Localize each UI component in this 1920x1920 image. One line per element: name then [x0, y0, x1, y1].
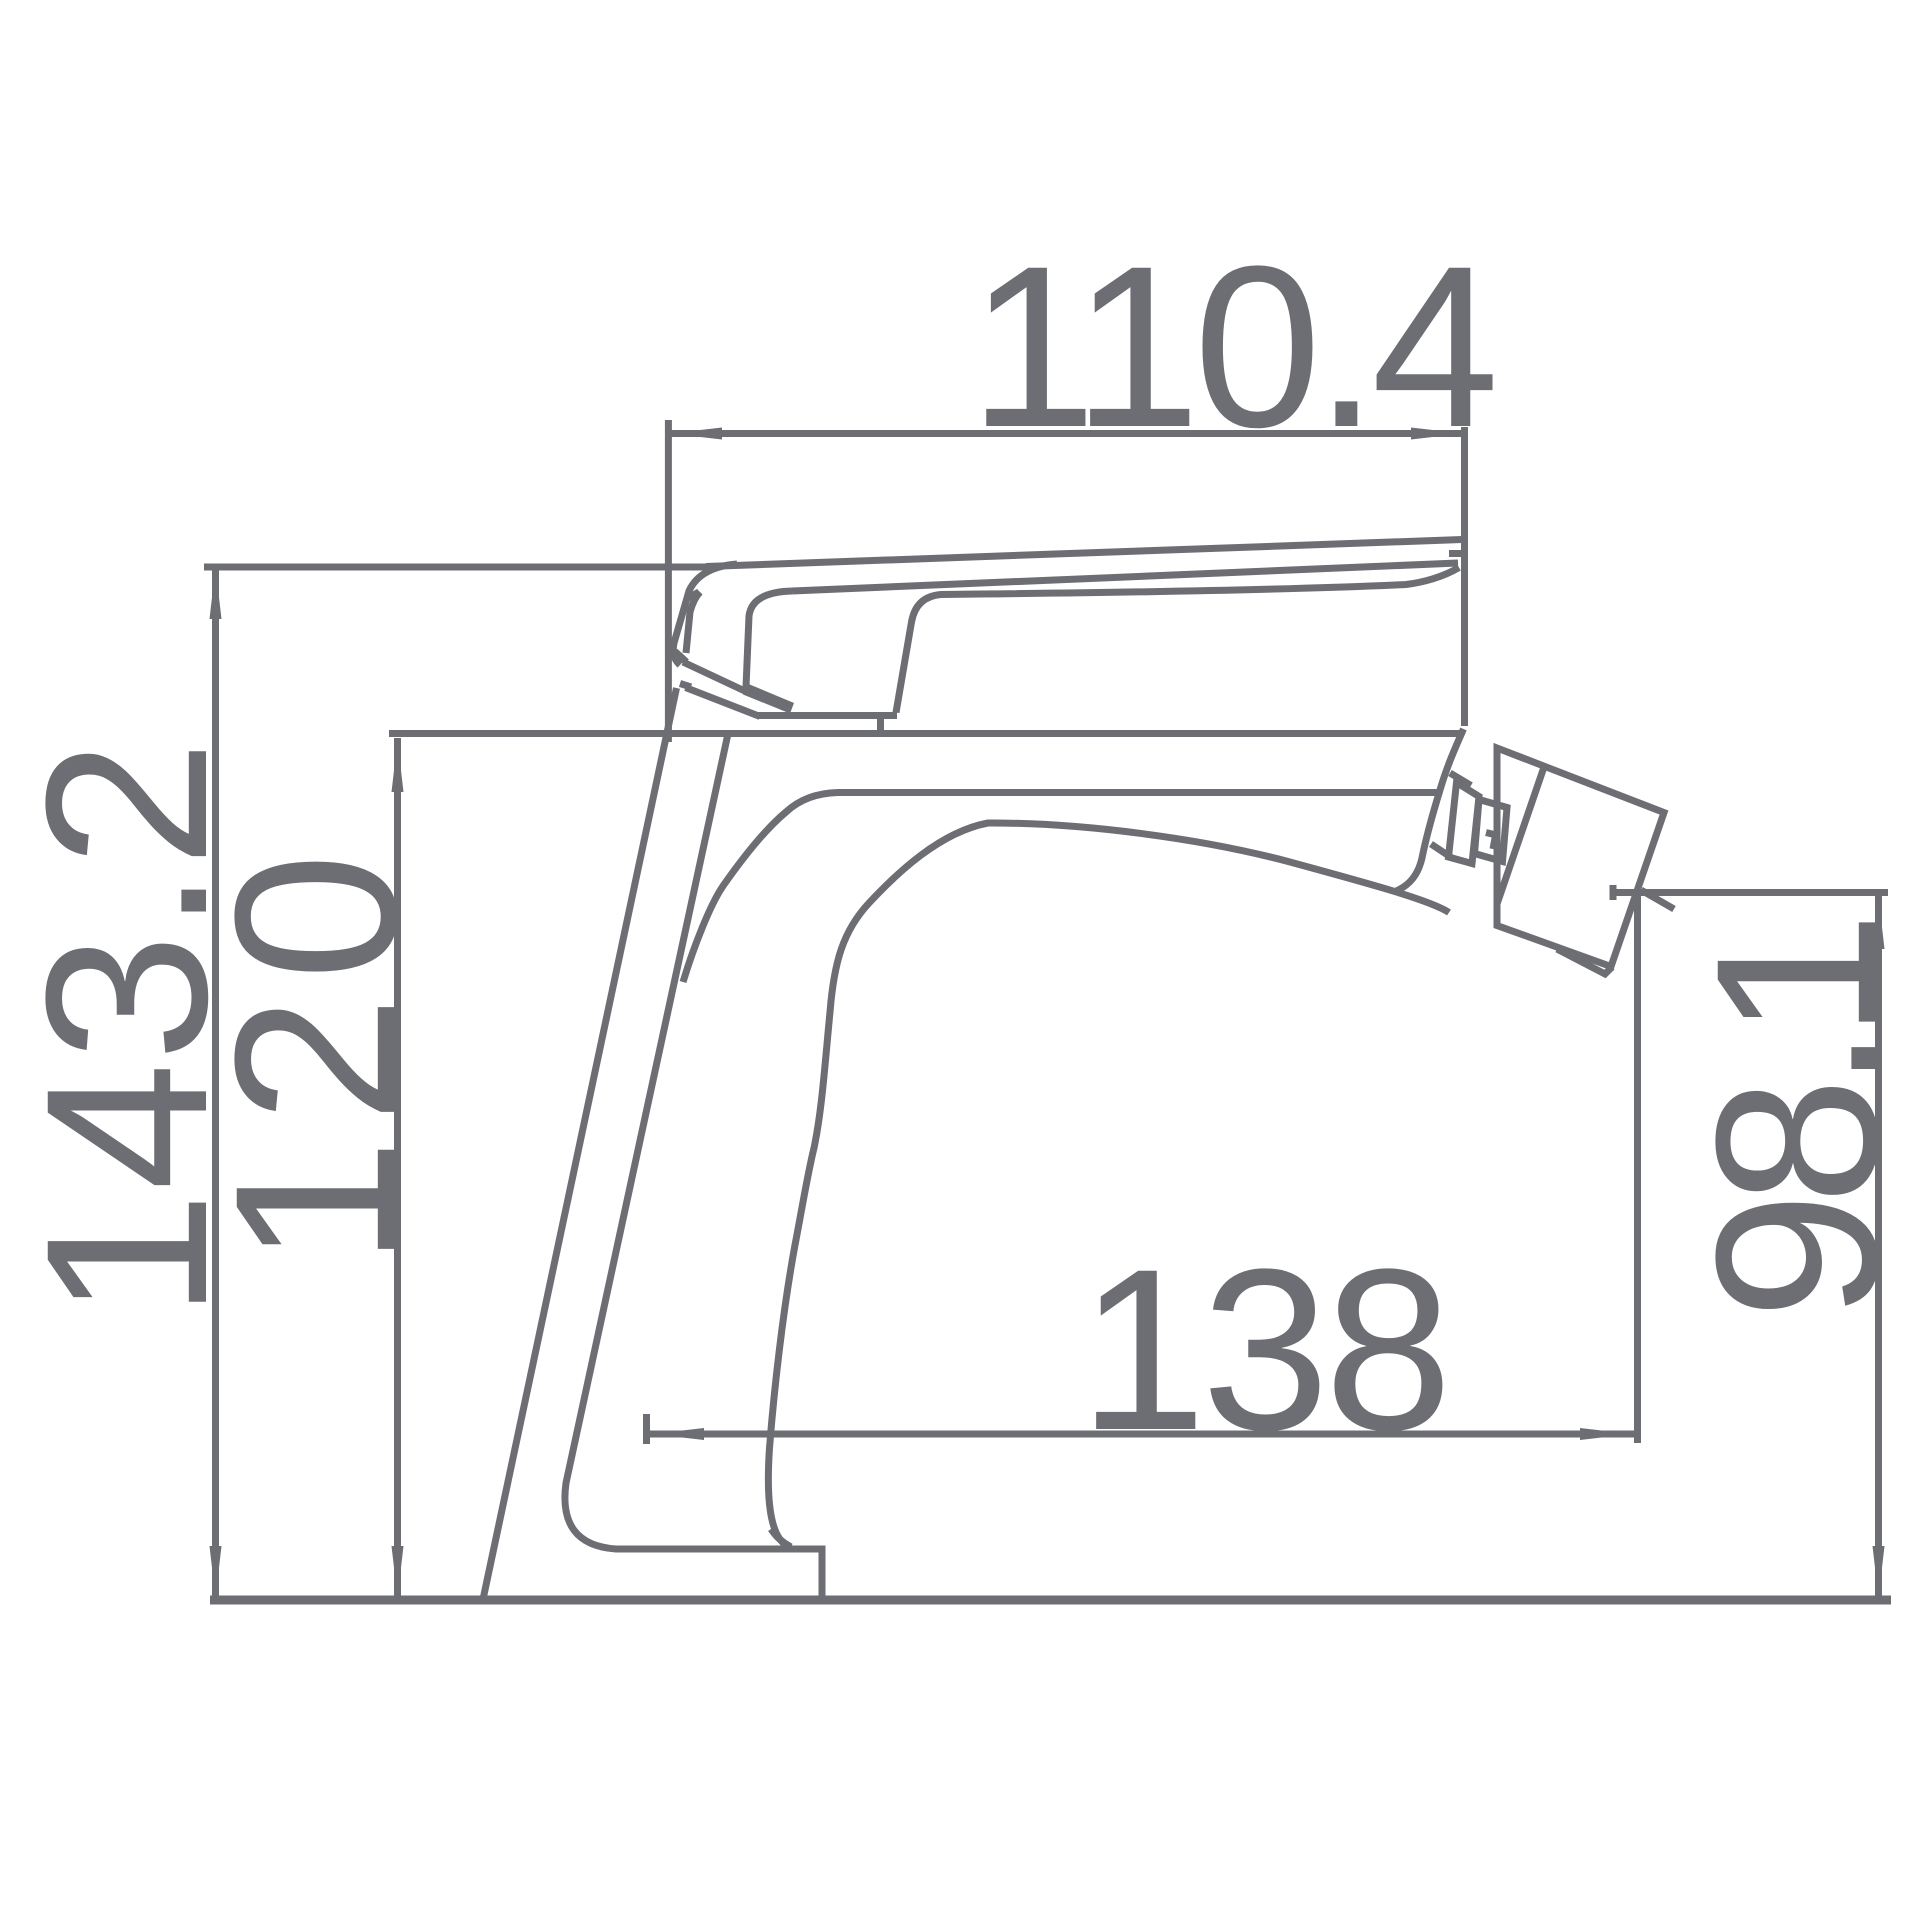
svg-text:138: 138	[1079, 1221, 1448, 1478]
svg-text:110.4: 110.4	[969, 218, 1494, 475]
svg-text:98.1: 98.1	[1668, 922, 1920, 1320]
svg-text:120: 120	[187, 838, 444, 1267]
